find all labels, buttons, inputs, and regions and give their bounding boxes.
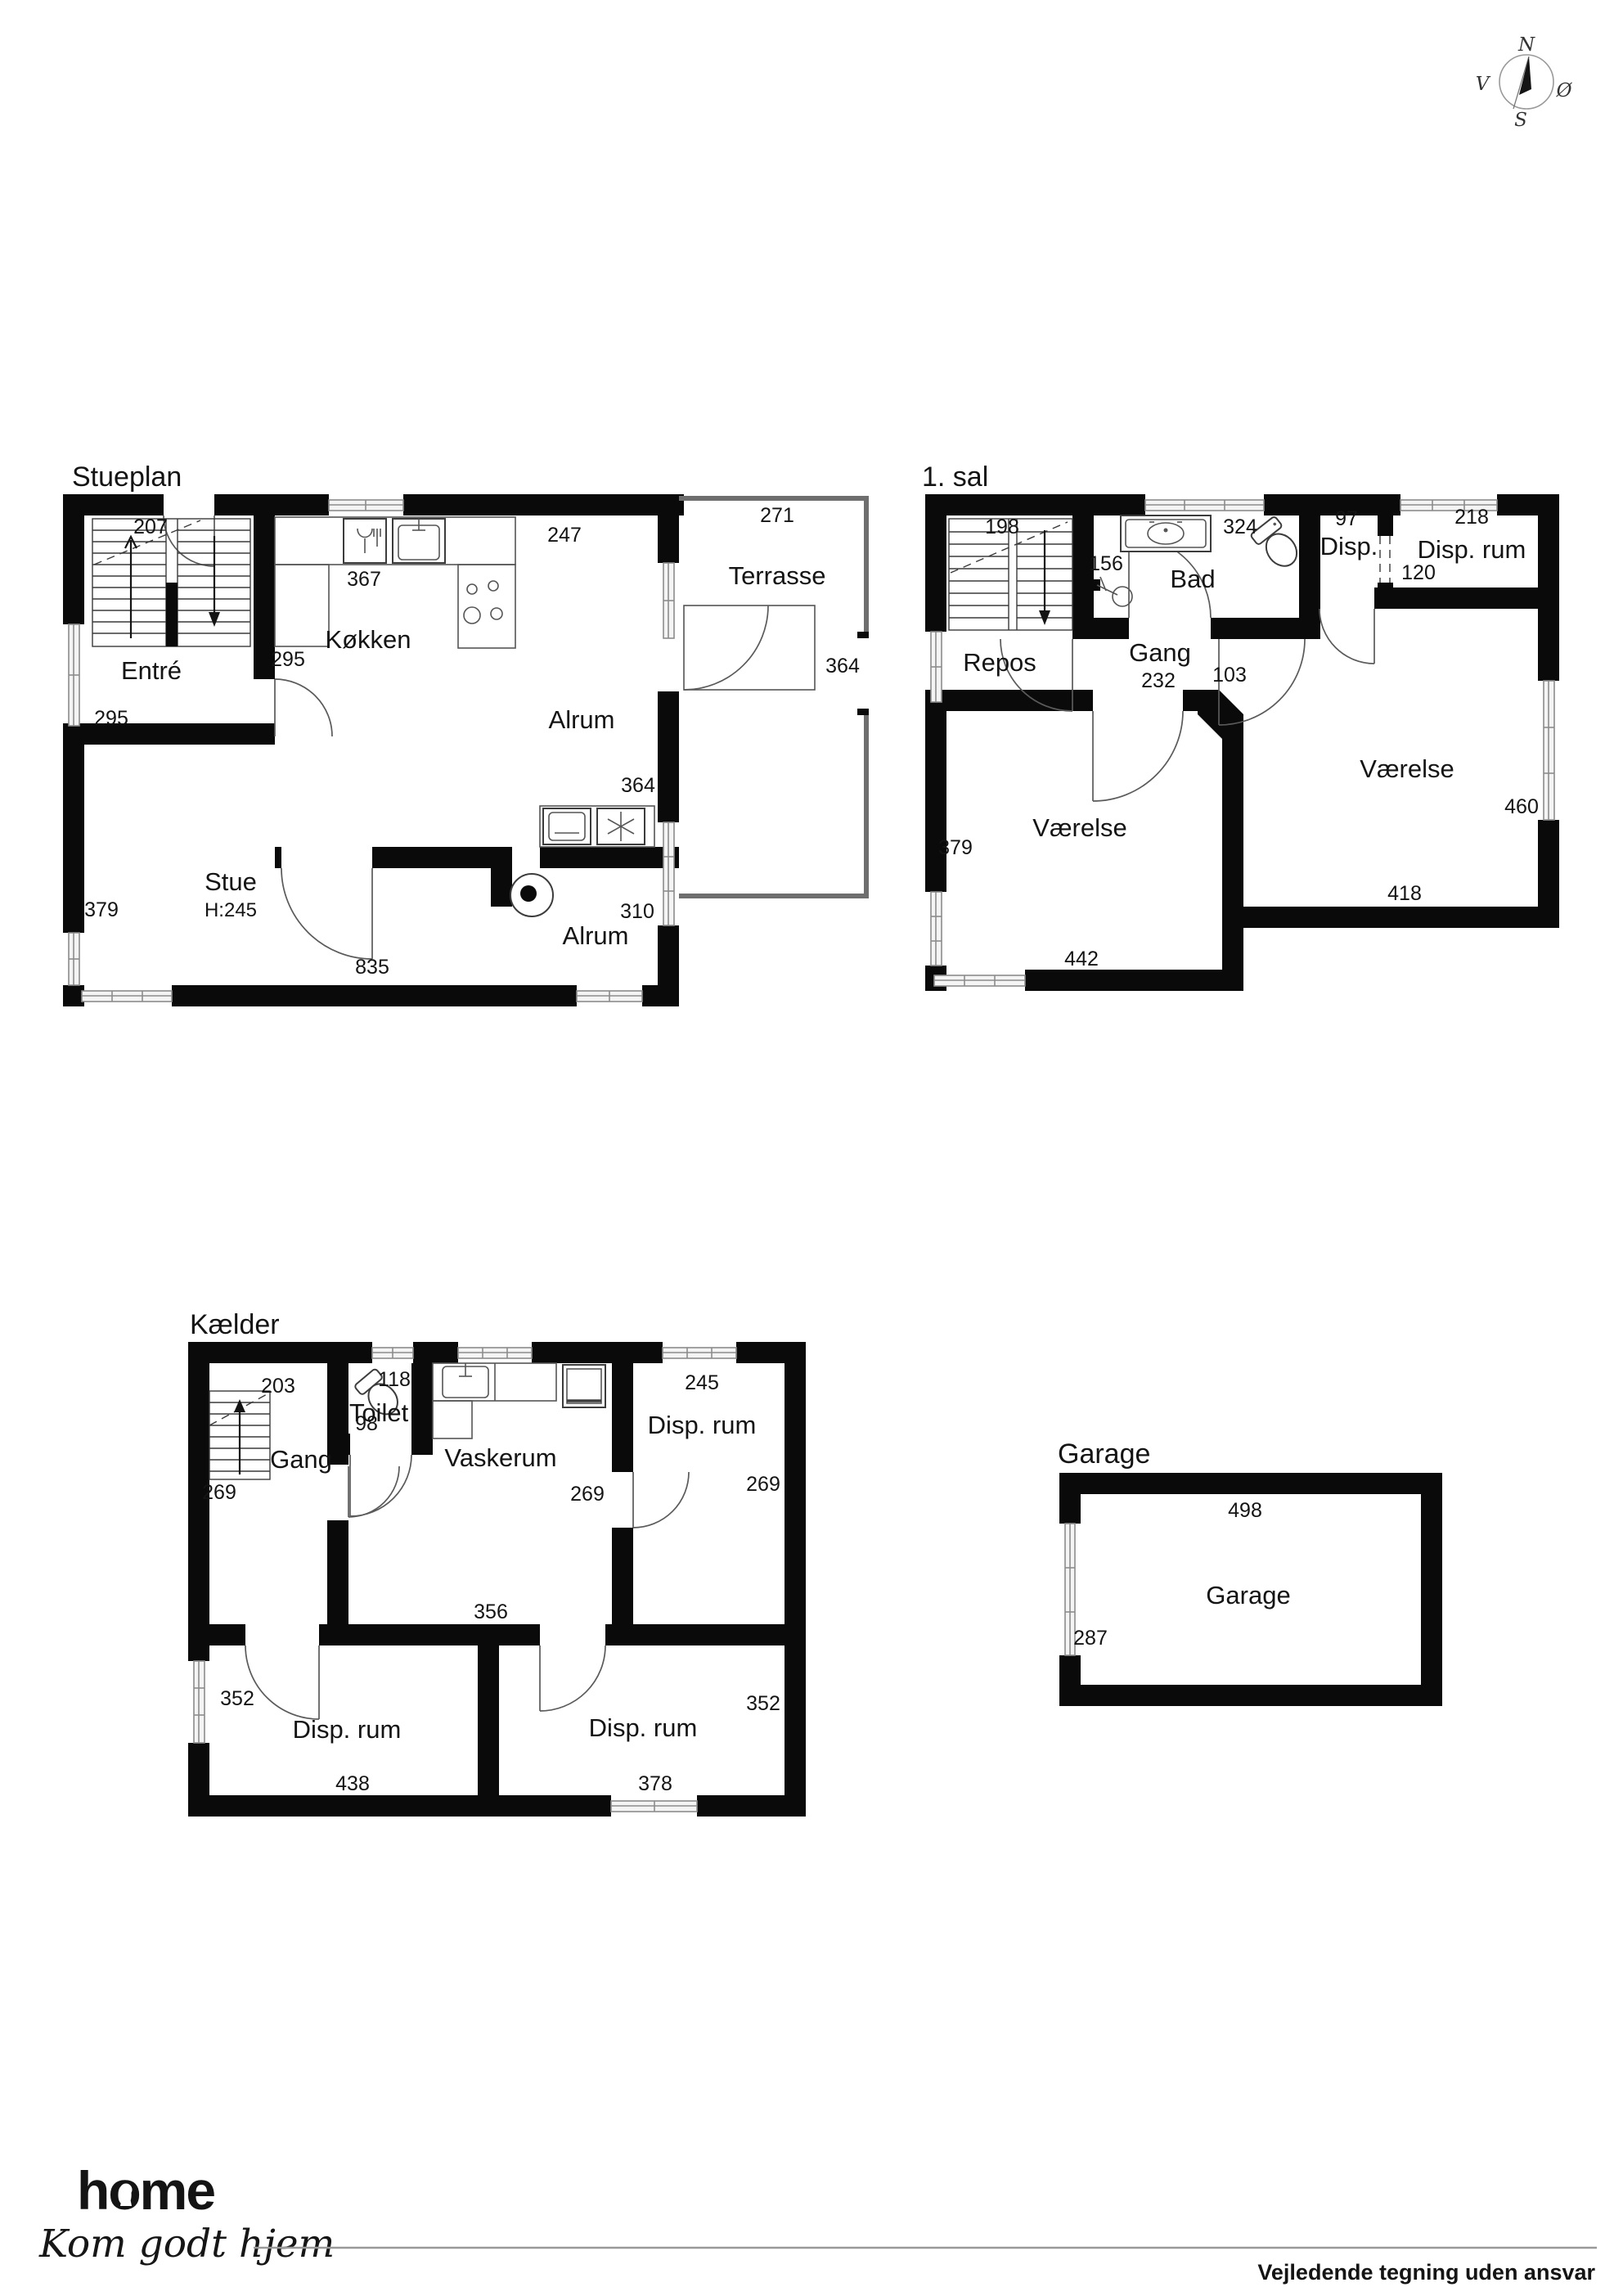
sliding-opening [1380, 536, 1390, 583]
room-label-alrum-bottom: Alrum [563, 921, 629, 950]
room-label-vaskerum: Vaskerum [444, 1443, 556, 1472]
wall [785, 1342, 806, 1817]
dim-232: 232 [1141, 669, 1176, 692]
terrasse-wall-cap [857, 709, 869, 715]
dim-364-terrasse: 364 [825, 655, 860, 678]
wall [532, 1342, 663, 1363]
wall [925, 702, 946, 892]
door-arc [281, 868, 372, 959]
diagonal-wall [1198, 690, 1243, 739]
door-arc [275, 679, 332, 736]
room-label-garage: Garage [1206, 1581, 1290, 1609]
wall [540, 847, 679, 868]
terrasse-door [684, 606, 815, 690]
room-label-kokken: Køkken [325, 625, 411, 654]
dim-120: 120 [1401, 561, 1436, 584]
wall [209, 1624, 245, 1645]
wall [1299, 494, 1320, 639]
wall [411, 1363, 433, 1455]
wall [1421, 1473, 1442, 1706]
room-label-repos: Repos [963, 648, 1036, 677]
terrasse-wall-cap [857, 632, 869, 638]
compass-icon: N S V Ø [1476, 34, 1573, 131]
door-arc [1320, 609, 1374, 664]
dim-207: 207 [133, 515, 168, 538]
compass-needle-north [1519, 56, 1531, 95]
wall [1025, 970, 1243, 991]
wall [478, 1624, 499, 1817]
window [611, 1801, 697, 1812]
dim-203: 203 [261, 1375, 295, 1398]
wall [1059, 1655, 1081, 1706]
terrasse-wall [864, 496, 869, 637]
door-arc [540, 1645, 605, 1711]
door-arc [633, 1472, 689, 1528]
dim-356: 356 [474, 1600, 508, 1623]
wall [605, 1624, 785, 1645]
window [663, 1348, 736, 1358]
window [329, 500, 403, 511]
room-label-bad: Bad [1170, 565, 1215, 593]
dim-98: 98 [355, 1412, 378, 1435]
window [663, 822, 674, 925]
stair-wall [166, 583, 178, 646]
compass-s-label: S [1514, 110, 1527, 131]
slogan-text: Kom godt hjem [38, 2222, 335, 2267]
dim-324: 324 [1223, 515, 1257, 538]
wall [925, 494, 1145, 515]
wall [1059, 1685, 1442, 1706]
dim-379-first: 379 [938, 836, 973, 859]
room-label-disp: Disp. [1320, 532, 1378, 560]
wall [1059, 1473, 1081, 1524]
basement-title: Kælder [190, 1309, 280, 1340]
dishwasher-icon [344, 519, 386, 563]
cabinet-icon [275, 565, 329, 646]
stairs-icon [209, 1391, 270, 1479]
wall [925, 494, 946, 632]
washing-machine-icon [563, 1365, 605, 1407]
wall [925, 690, 1093, 711]
dim-245: 245 [685, 1371, 719, 1394]
dim-367: 367 [347, 568, 381, 591]
alrum-counter [540, 806, 654, 847]
wall [1094, 618, 1129, 639]
stueplan-title: Stueplan [72, 461, 182, 493]
wall [327, 1520, 348, 1624]
wall [1378, 515, 1393, 536]
dishwasher-icon [543, 808, 591, 844]
room-label-entre: Entré [121, 656, 182, 685]
dim-247: 247 [547, 524, 582, 547]
door-arc [350, 1455, 411, 1516]
room-label-gang-basement: Gang [270, 1445, 332, 1474]
wall [413, 1342, 458, 1363]
dim-118: 118 [378, 1368, 411, 1391]
window [663, 563, 674, 638]
dim-835: 835 [355, 956, 389, 979]
dim-498: 498 [1228, 1499, 1262, 1522]
wall [491, 847, 512, 907]
door-arc [164, 515, 214, 566]
dim-379: 379 [84, 898, 119, 921]
room-label-alrum-top: Alrum [549, 705, 615, 734]
room-label-terrasse: Terrasse [729, 561, 826, 590]
wall [188, 1795, 611, 1817]
dim-287: 287 [1073, 1627, 1108, 1650]
dim-271: 271 [760, 504, 794, 527]
terrasse-outline [679, 496, 869, 898]
freezer-icon [597, 808, 645, 844]
window [931, 892, 942, 966]
dim-364-alrum: 364 [621, 774, 655, 797]
compass-n-label: N [1517, 34, 1535, 56]
window [934, 975, 1025, 986]
compass-east-label: Ø [1556, 80, 1573, 101]
wall [188, 1342, 372, 1363]
dim-310: 310 [620, 900, 654, 923]
window [372, 1348, 413, 1358]
room-label-disp-rum: Disp. rum [1418, 535, 1526, 564]
wall [319, 1624, 540, 1645]
window [577, 991, 642, 1002]
room-label-gang: Gang [1129, 638, 1191, 667]
washbasin-icon [1121, 515, 1211, 551]
wall [1222, 907, 1559, 928]
room-label-vaerelse-right: Værelse [1360, 754, 1454, 783]
floor-basement: Kælder [188, 1309, 806, 1817]
wall [1264, 494, 1400, 515]
dim-103: 103 [1212, 664, 1247, 687]
window [69, 933, 79, 985]
room-label-disp-left: Disp. rum [293, 1715, 402, 1744]
garage-title: Garage [1058, 1438, 1150, 1470]
window [931, 632, 942, 702]
door-arc [245, 1645, 319, 1719]
shower-icon [1094, 577, 1132, 606]
fireplace-icon [510, 874, 553, 916]
dim-156: 156 [1089, 552, 1123, 575]
window [194, 1661, 205, 1743]
sink-icon [393, 519, 445, 563]
dim-378: 378 [638, 1772, 672, 1795]
stove-icon [458, 565, 515, 648]
toilet-icon [1250, 515, 1304, 573]
wall [1538, 820, 1559, 928]
laundry-sink-icon [433, 1363, 556, 1438]
wall [63, 726, 84, 933]
dim-218: 218 [1454, 506, 1489, 529]
dim-97: 97 [1335, 507, 1358, 530]
floorplan-canvas: N S V Ø Stueplan [0, 0, 1623, 2296]
dim-269-gang: 269 [202, 1481, 236, 1504]
floor-garage: Garage Garage 498 287 [1058, 1438, 1442, 1706]
terrasse-wall [679, 496, 869, 501]
window [82, 991, 172, 1002]
dim-269-vask: 269 [570, 1483, 605, 1506]
wall [612, 1363, 633, 1472]
room-label-vaerelse-left: Værelse [1032, 813, 1126, 842]
room-label-stue: Stue [205, 867, 257, 896]
room-label-disp-top: Disp. rum [648, 1411, 757, 1439]
wall [658, 691, 679, 822]
dim-198: 198 [985, 515, 1019, 538]
floor-stueplan: Stueplan [63, 461, 869, 1006]
dim-460: 460 [1504, 795, 1539, 818]
dim-295-entre: 295 [94, 707, 128, 730]
door-arc [348, 1466, 399, 1517]
compass-v-label: V [1476, 74, 1491, 95]
window [1544, 681, 1554, 820]
room-label-disp-right: Disp. rum [589, 1713, 698, 1742]
wall [658, 925, 679, 1006]
footer: home Kom godt hjem Vejledende tegning ud… [38, 2160, 1597, 2285]
dim-418: 418 [1387, 882, 1422, 905]
wall [925, 970, 934, 991]
wall [63, 985, 82, 1006]
first-floor-title: 1. sal [922, 461, 988, 493]
door-arc [1093, 711, 1183, 801]
window [1145, 500, 1264, 511]
window [458, 1348, 532, 1358]
home-logo: home [77, 2160, 214, 2221]
counter-return [433, 1401, 472, 1438]
wall [1222, 714, 1243, 991]
terrasse-wall [679, 894, 869, 898]
stairs-icon [92, 519, 250, 646]
wall [403, 494, 684, 515]
dim-352-right: 352 [746, 1692, 780, 1715]
wall [275, 847, 281, 868]
dim-269-disp: 269 [746, 1473, 780, 1496]
dim-442: 442 [1064, 948, 1099, 970]
wall [658, 494, 679, 563]
wall [1059, 1473, 1442, 1494]
disclaimer-text: Vejledende tegning uden ansvar [1257, 2260, 1595, 2285]
wall [612, 1528, 633, 1624]
floor-first: 1. sal [922, 461, 1559, 991]
dim-438: 438 [335, 1772, 370, 1795]
dim-352-left: 352 [220, 1687, 254, 1710]
terrasse-wall [864, 710, 869, 898]
wall [63, 494, 84, 624]
window [69, 624, 79, 726]
wall [172, 985, 577, 1006]
dim-295-kokken: 295 [271, 648, 305, 671]
wall [1374, 588, 1559, 609]
ceiling-height-label: H:245 [205, 899, 257, 921]
